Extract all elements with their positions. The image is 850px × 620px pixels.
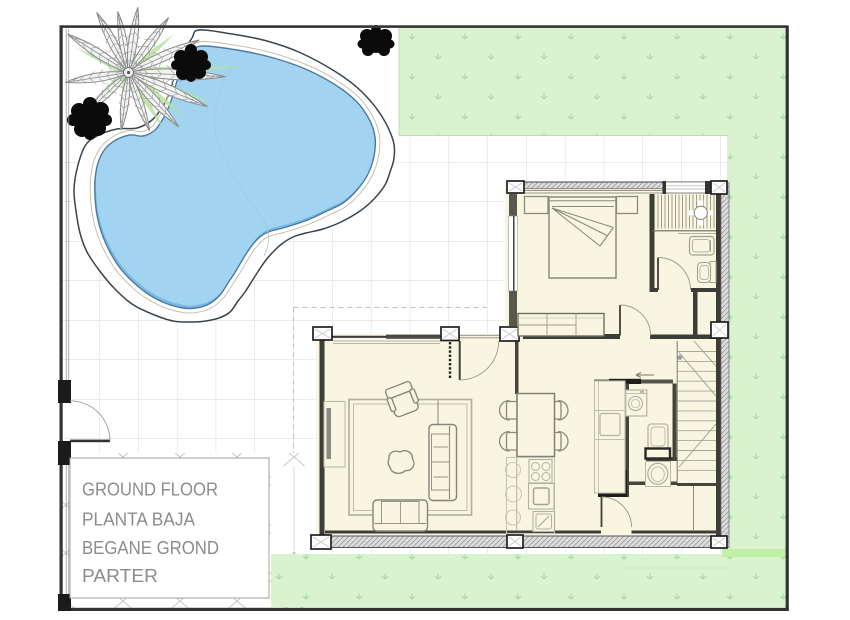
svg-text:BEGANE GROND: BEGANE GROND (82, 537, 219, 558)
svg-text:GROUND FLOOR: GROUND FLOOR (82, 479, 218, 500)
svg-text:PARTER: PARTER (82, 565, 158, 586)
svg-text:PLANTA BAJA: PLANTA BAJA (82, 509, 196, 530)
